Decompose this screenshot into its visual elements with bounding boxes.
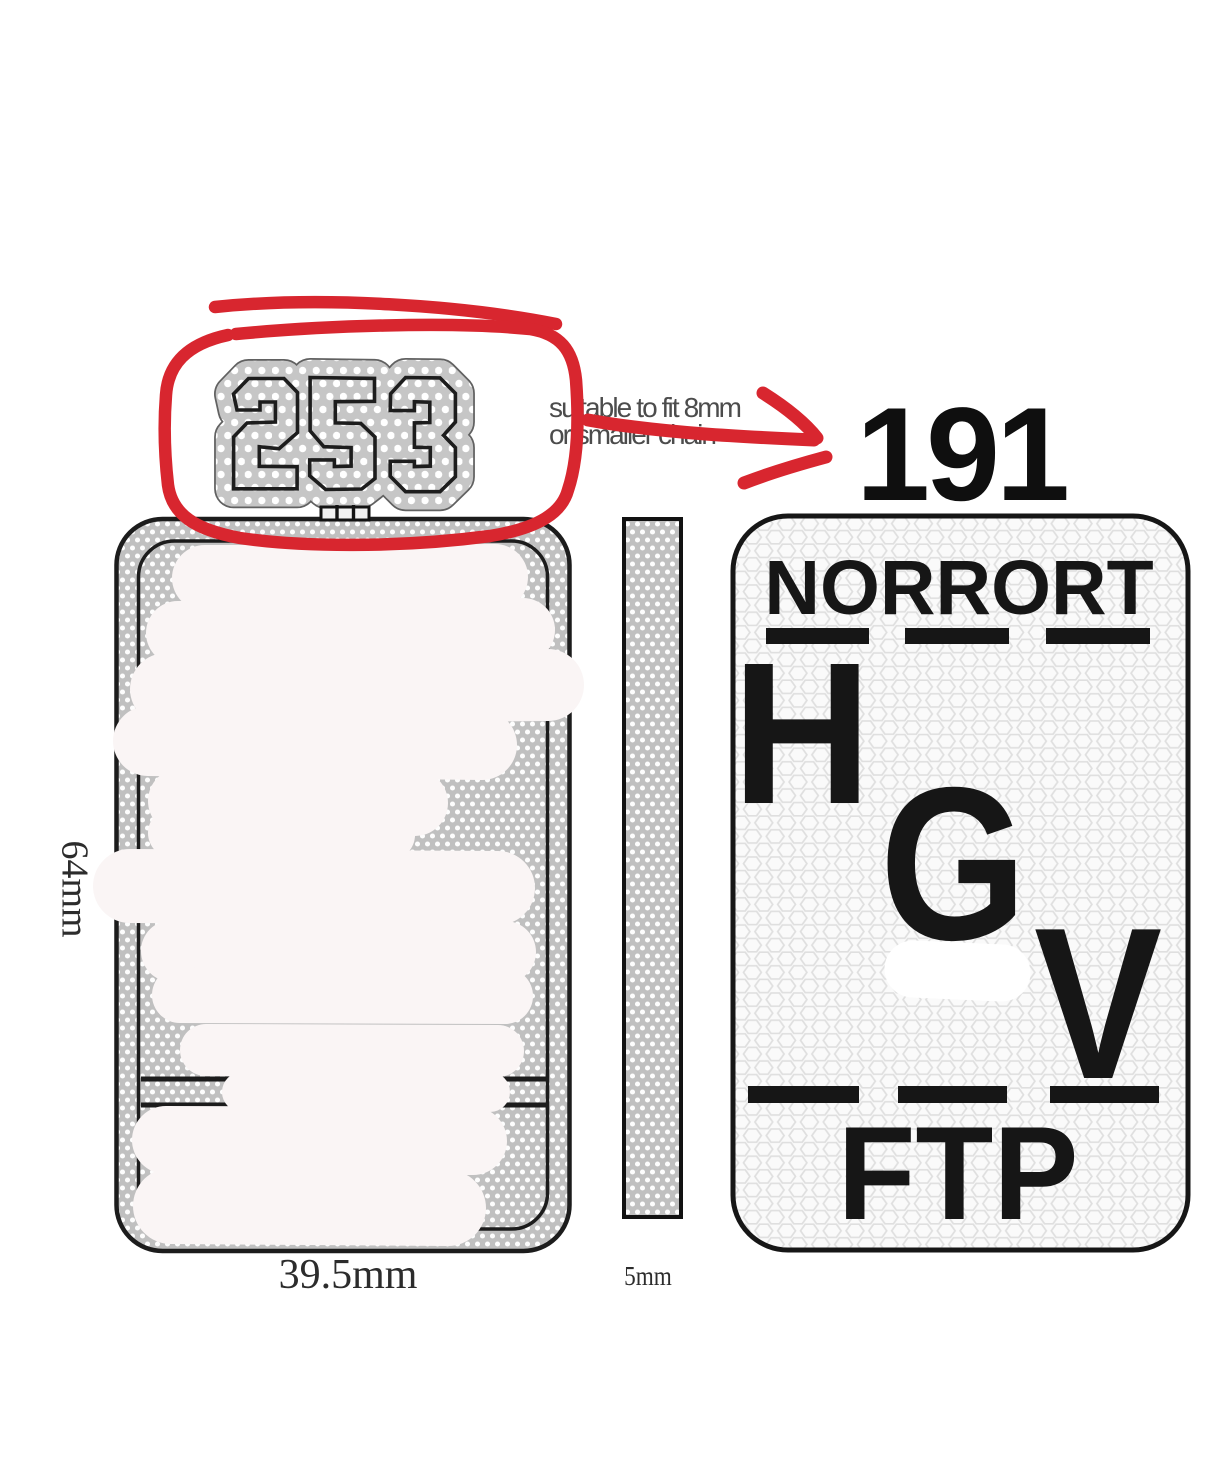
svg-text:191: 191: [856, 381, 1067, 529]
svg-text:5mm: 5mm: [624, 1262, 672, 1291]
svg-text:NORRORT: NORRORT: [764, 545, 1153, 631]
svg-text:64mm: 64mm: [54, 840, 96, 937]
svg-text:H: H: [732, 620, 872, 846]
svg-text:FTP: FTP: [838, 1099, 1079, 1248]
svg-text:39.5mm: 39.5mm: [279, 1252, 418, 1298]
